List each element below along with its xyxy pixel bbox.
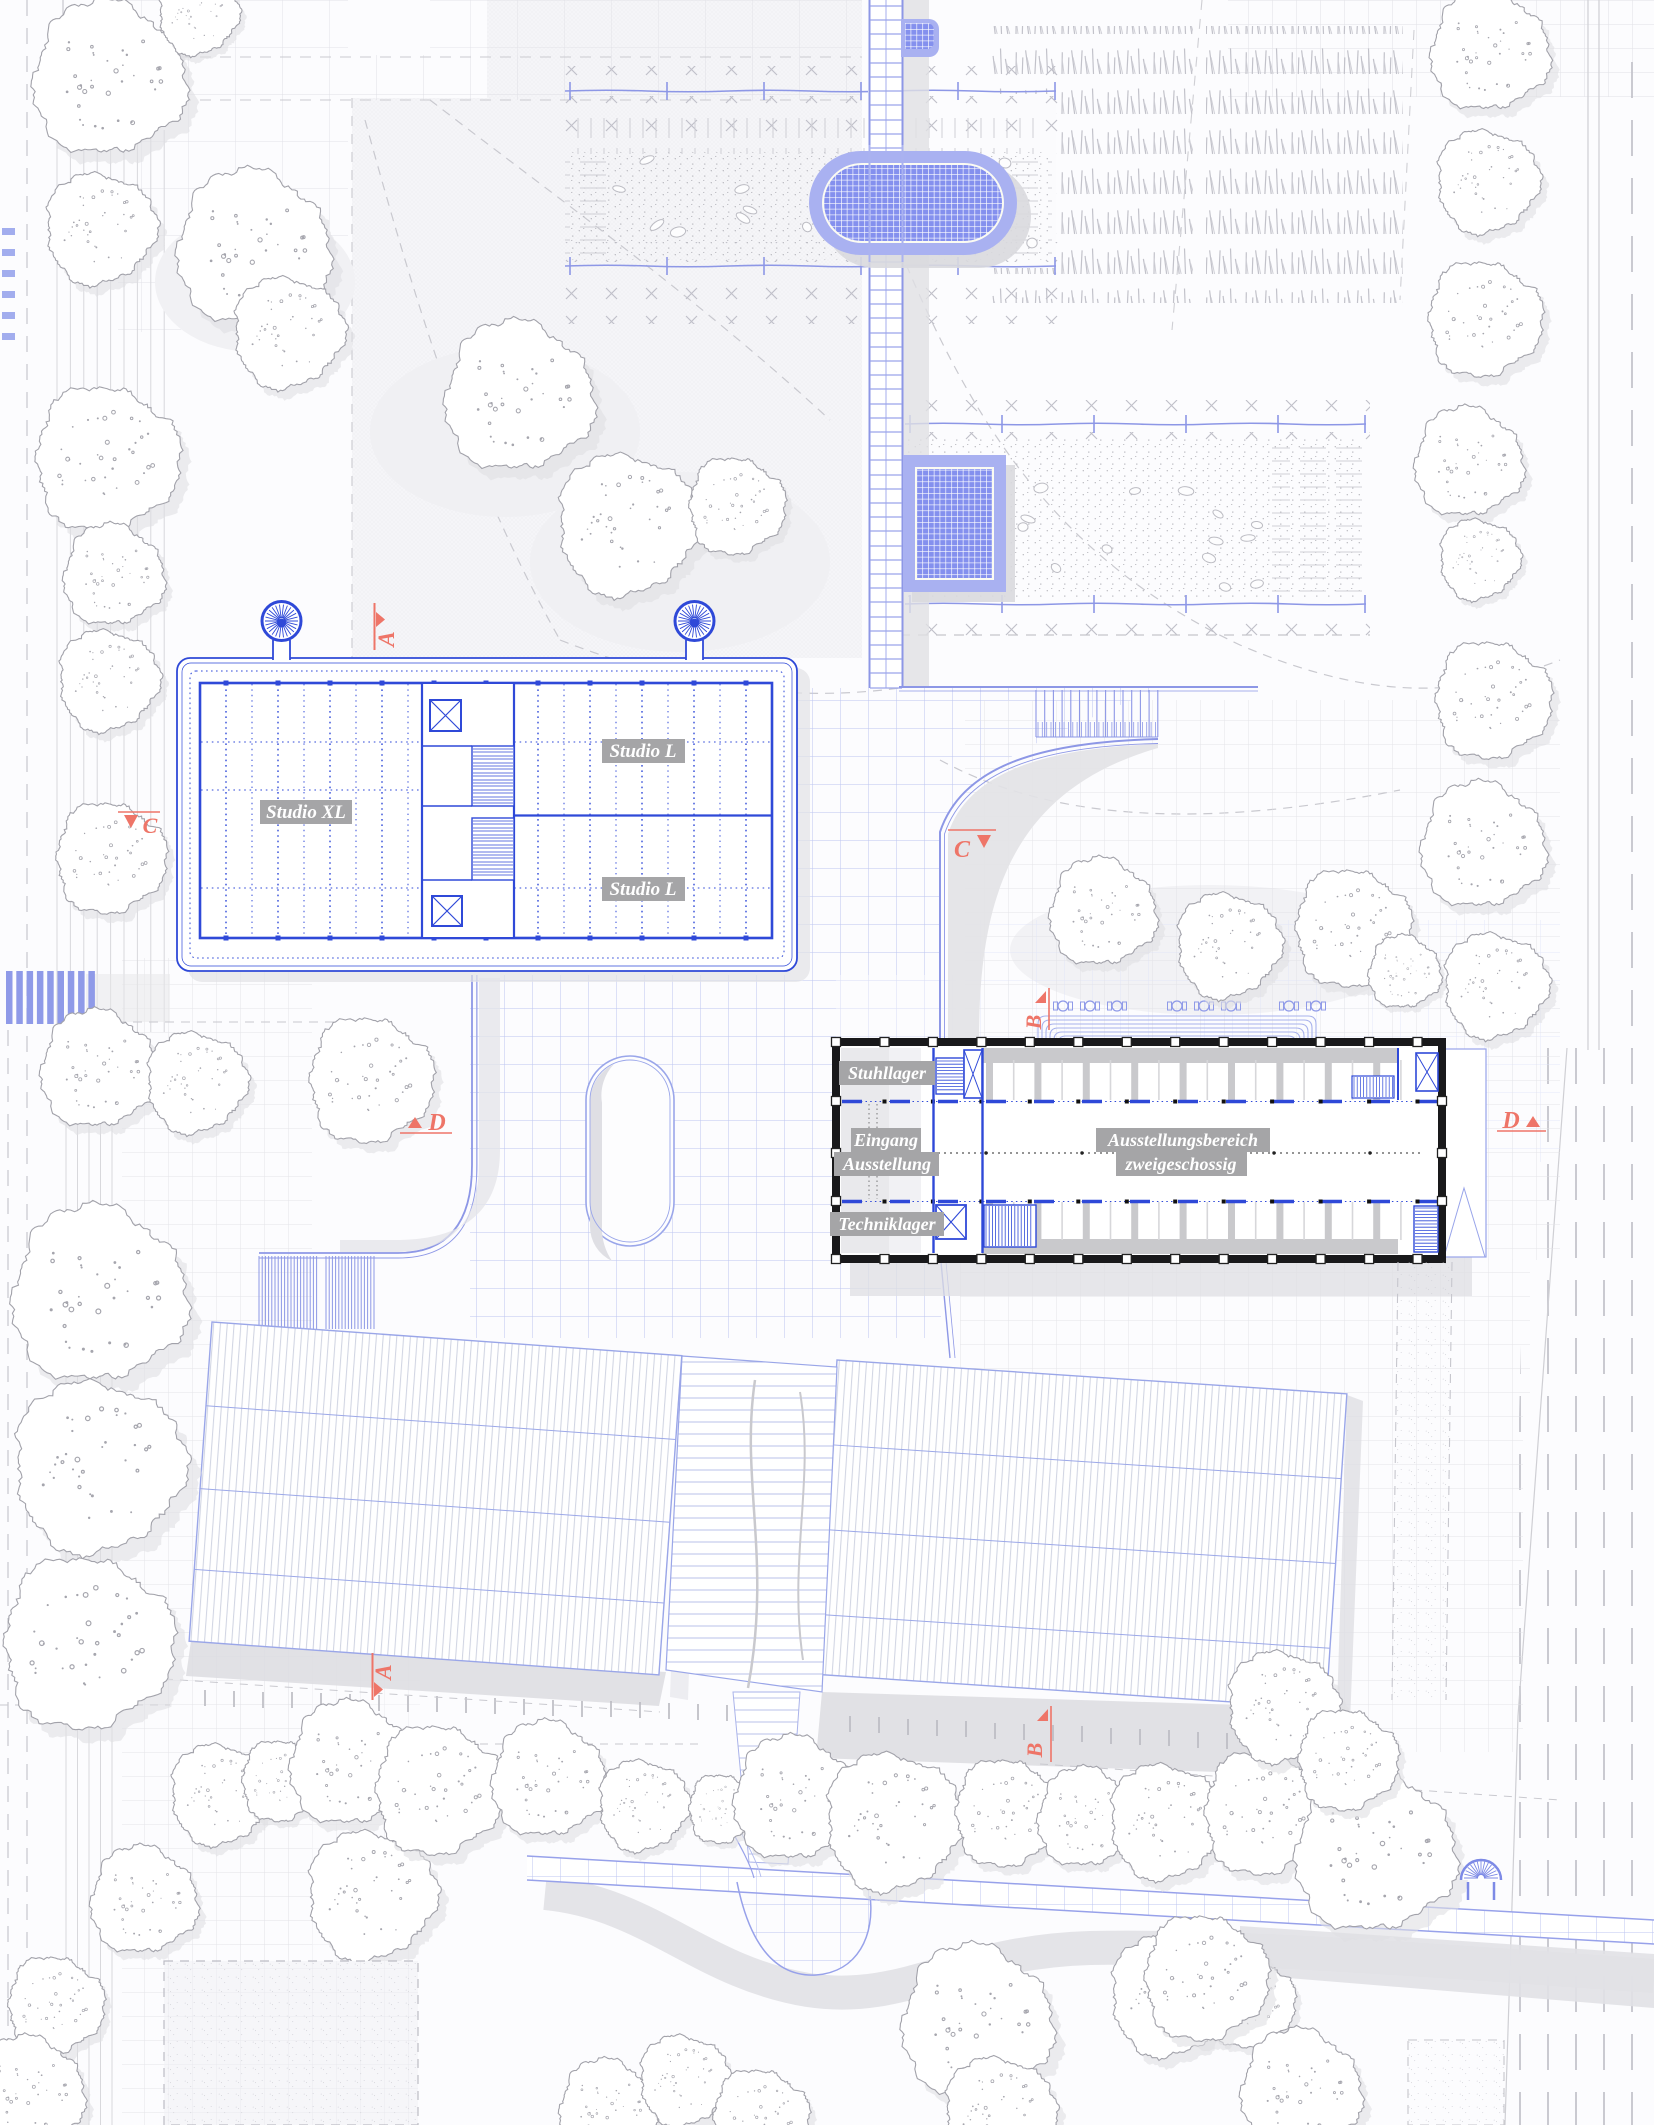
svg-text:Studio L: Studio L xyxy=(609,879,676,900)
svg-text:D: D xyxy=(1501,1108,1519,1134)
svg-text:B: B xyxy=(1022,1743,1047,1759)
svg-text:C: C xyxy=(143,813,158,838)
svg-text:Ausstellung: Ausstellung xyxy=(842,1154,931,1174)
svg-text:Stuhllager: Stuhllager xyxy=(848,1063,927,1083)
svg-text:Studio L: Studio L xyxy=(609,741,676,762)
svg-text:B: B xyxy=(1021,1015,1046,1031)
svg-text:Eingang: Eingang xyxy=(853,1130,918,1150)
svg-text:Studio XL: Studio XL xyxy=(266,802,346,823)
svg-text:C: C xyxy=(954,837,971,863)
svg-text:A: A xyxy=(371,1664,396,1681)
svg-text:A: A xyxy=(374,631,399,648)
svg-text:D: D xyxy=(427,1110,445,1136)
svg-text:Techniklager: Techniklager xyxy=(838,1214,936,1234)
svg-text:Ausstellungsbereich: Ausstellungsbereich xyxy=(1107,1130,1258,1150)
svg-text:zweigeschossig: zweigeschossig xyxy=(1124,1154,1236,1174)
